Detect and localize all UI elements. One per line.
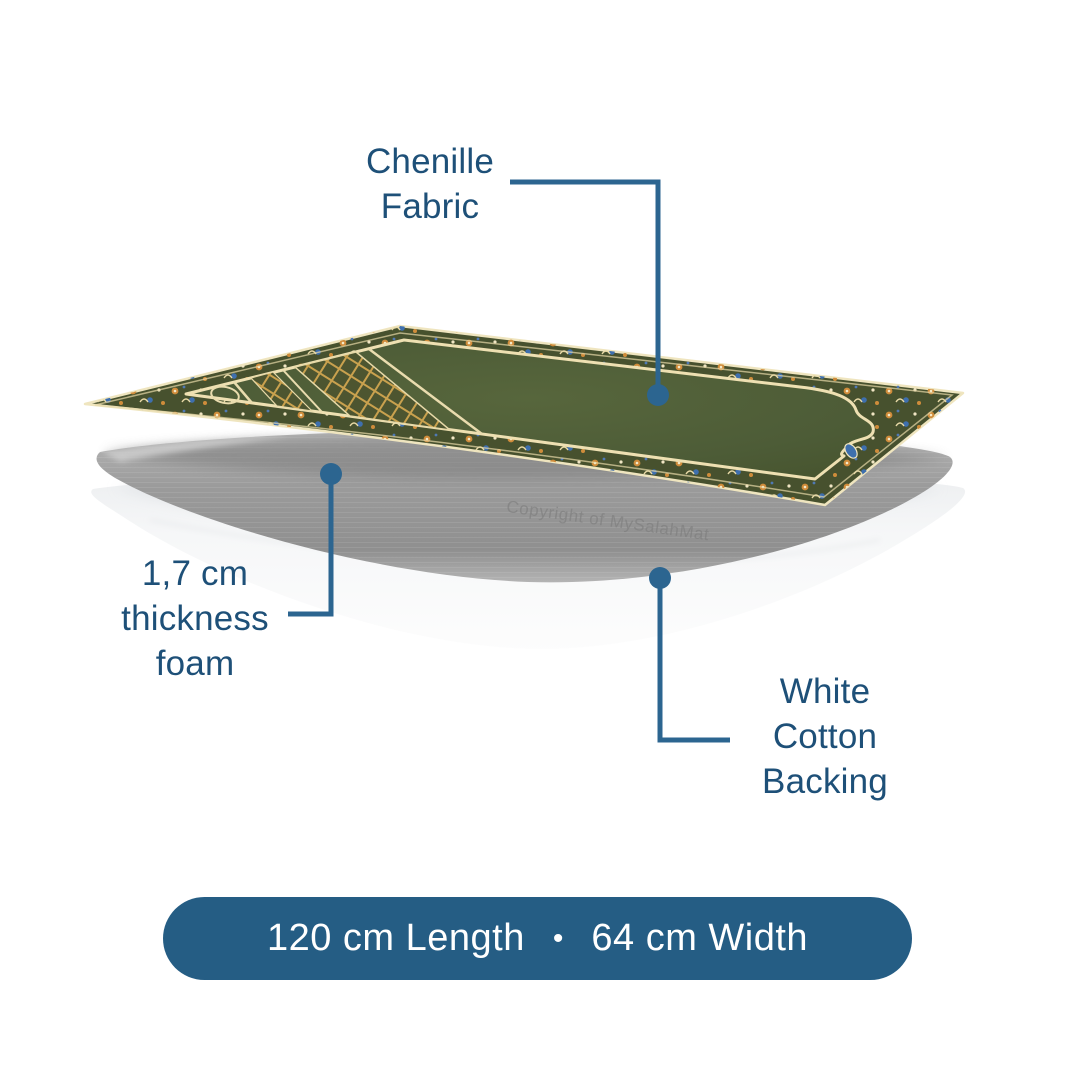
label-line: 1,7 cm: [70, 551, 320, 596]
bullet-separator-icon: •: [553, 897, 564, 980]
label-line: Fabric: [320, 184, 540, 229]
foam-thickness-label: 1,7 cm thickness foam: [70, 551, 320, 686]
label-line: Backing: [715, 759, 935, 804]
callout-dot-chenille: [647, 384, 669, 406]
infographic-canvas: Chenille Fabric 1,7 cm thickness foam Wh…: [0, 0, 1080, 1080]
width-value: 64 cm Width: [591, 917, 808, 960]
dimensions-pill: 120 cm Length • 64 cm Width: [163, 897, 912, 980]
label-line: Chenille: [320, 139, 540, 184]
label-line: foam: [70, 641, 320, 686]
chenille-fabric-label: Chenille Fabric: [320, 139, 540, 229]
callout-dot-foam: [320, 463, 342, 485]
label-line: Cotton: [715, 714, 935, 759]
label-line: White: [715, 669, 935, 714]
label-line: thickness: [70, 596, 320, 641]
cotton-backing-label: White Cotton Backing: [715, 669, 935, 804]
callout-dot-backing: [649, 567, 671, 589]
length-value: 120 cm Length: [267, 917, 525, 960]
